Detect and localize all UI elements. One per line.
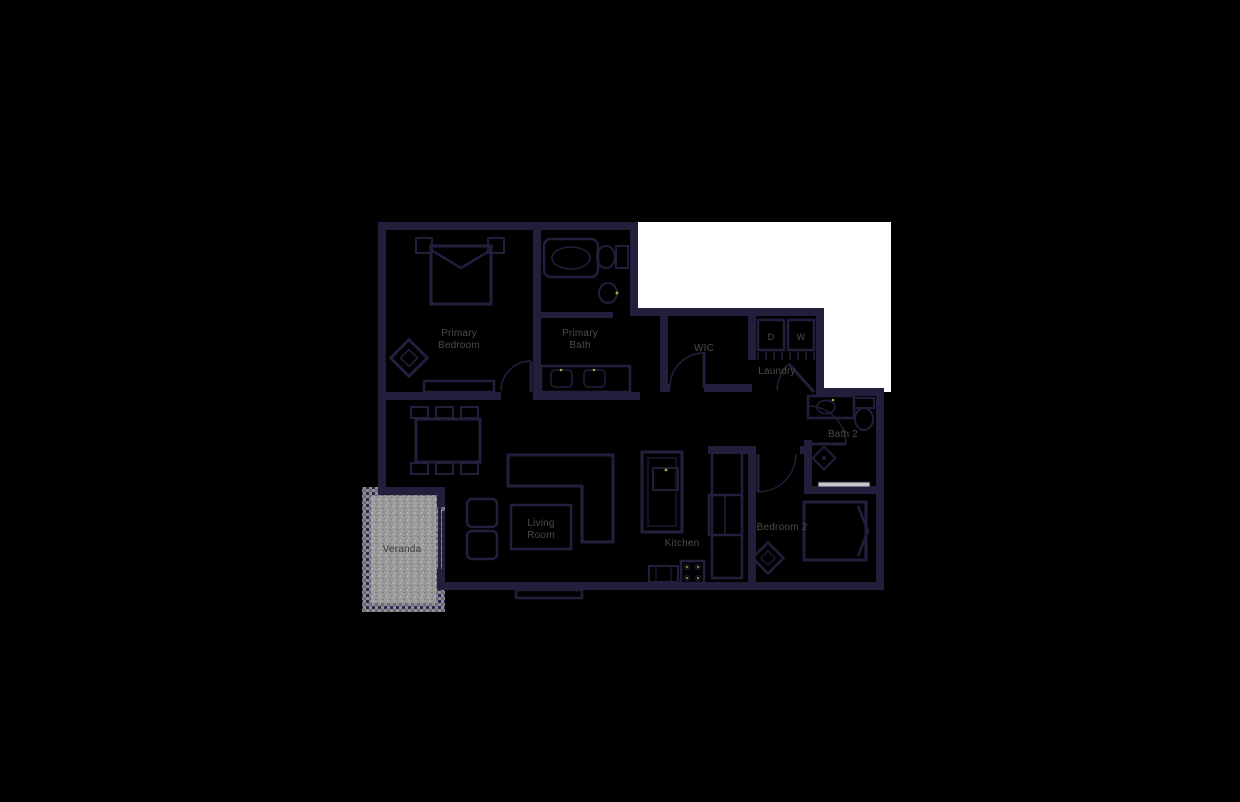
label-primary-bedroom: Primary bbox=[441, 328, 477, 339]
label-bedroom2: Bedroom 2 bbox=[757, 522, 808, 533]
label-kitchen: Kitchen bbox=[665, 538, 700, 549]
label-living-room-2: Room bbox=[527, 530, 554, 541]
floor-plan-page: Primary Bedroom Primary Bath WIC Laundry… bbox=[0, 0, 1240, 802]
shower-glass bbox=[818, 482, 870, 487]
label-dryer: D bbox=[768, 332, 775, 342]
label-primary-bath: Primary bbox=[562, 328, 598, 339]
label-living-room: Living bbox=[527, 518, 554, 529]
label-wic: WIC bbox=[694, 343, 714, 354]
floor-plan: Primary Bedroom Primary Bath WIC Laundry… bbox=[0, 0, 1240, 802]
background bbox=[0, 0, 1240, 802]
label-primary-bath-2: Bath bbox=[569, 340, 590, 351]
label-washer: W bbox=[797, 332, 806, 342]
label-primary-bedroom-2: Bedroom bbox=[438, 340, 480, 351]
label-veranda: Veranda bbox=[383, 544, 422, 555]
label-bath2: Bath 2 bbox=[828, 429, 858, 440]
label-laundry: Laundry bbox=[758, 366, 796, 377]
